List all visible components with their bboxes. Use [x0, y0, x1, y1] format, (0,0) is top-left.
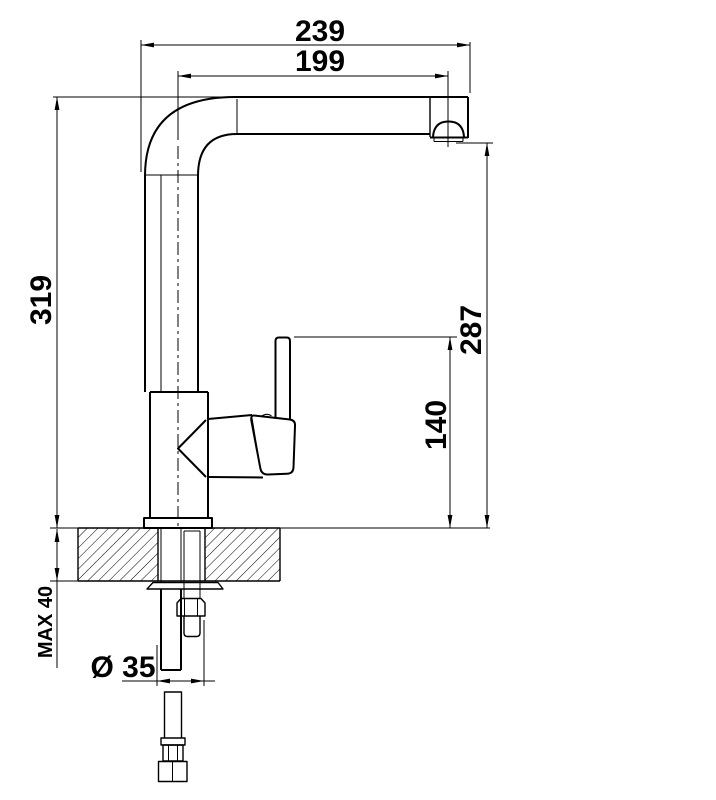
dim-label-outlet-height: 287 — [455, 305, 488, 355]
spout-outlet — [430, 97, 468, 142]
dim-label-hole-diameter: Ø 35 — [90, 651, 155, 684]
faucet-outline — [53, 97, 468, 528]
dimension-max-counter-thickness: MAX 40 — [35, 529, 59, 668]
centerlines — [178, 71, 448, 530]
mixer-body — [144, 392, 263, 528]
dimension-handle-height: 140 — [294, 337, 457, 528]
backnut-washer — [147, 583, 223, 590]
dim-label-overall-reach: 239 — [295, 15, 345, 48]
dimension-spout-reach: 199 — [178, 45, 448, 78]
dimension-overall-reach: 239 — [141, 15, 470, 172]
dim-label-overall-height: 319 — [25, 275, 58, 325]
countertop-section — [50, 528, 490, 581]
handle-lever — [276, 338, 291, 420]
dim-label-spout-reach: 199 — [295, 45, 345, 78]
dim-label-handle-height: 140 — [420, 400, 453, 450]
dimension-overall-height: 319 — [25, 97, 59, 528]
flexible-hose — [159, 692, 188, 782]
dimension-outlet-height: 287 — [455, 143, 493, 528]
technical-drawing-canvas: 239 199 319 287 140 MAX 40 — [0, 0, 716, 800]
dimension-hole-diameter: Ø 35 — [90, 620, 215, 686]
dim-label-max-thickness: MAX 40 — [35, 586, 57, 658]
handle — [251, 338, 295, 475]
faucet-dimension-drawing: 239 199 319 287 140 MAX 40 — [0, 0, 716, 800]
